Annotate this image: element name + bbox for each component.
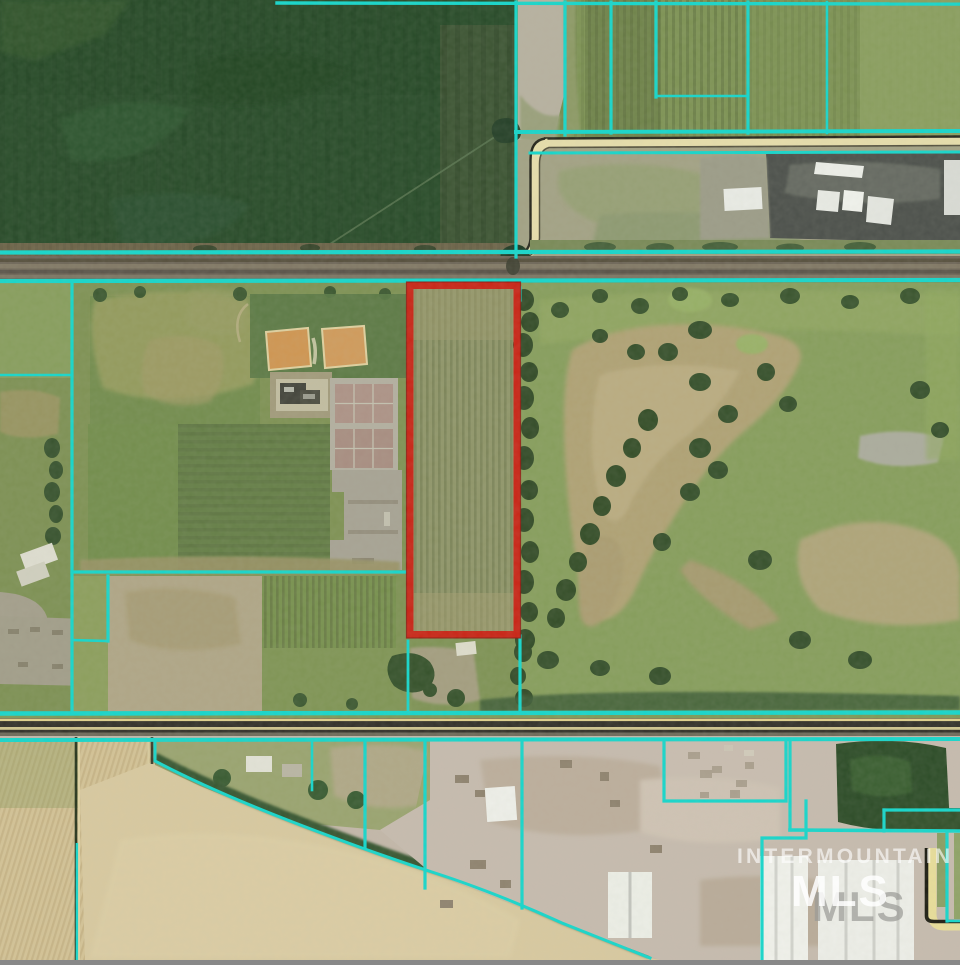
- svg-text:MLS: MLS: [791, 867, 890, 916]
- svg-text:INTERMOUNTAIN: INTERMOUNTAIN: [737, 845, 953, 868]
